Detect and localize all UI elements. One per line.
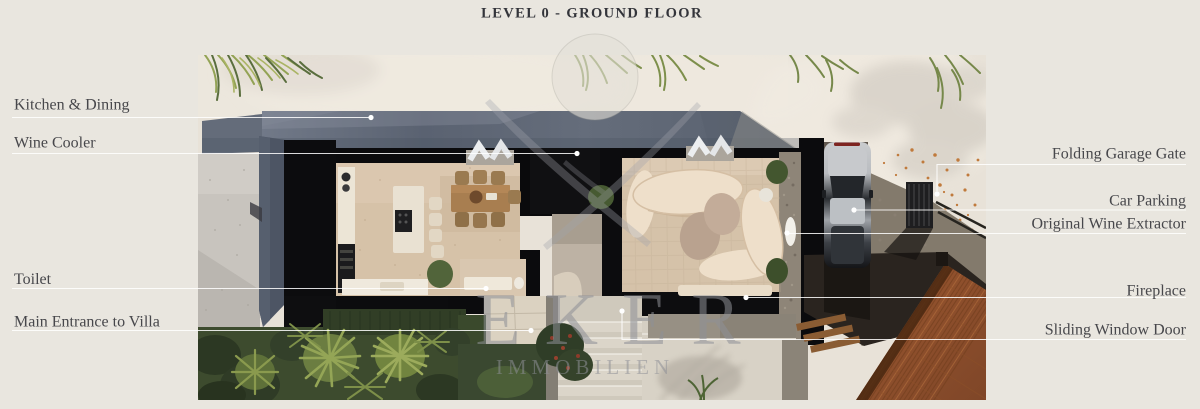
svg-text:Main Entrance to Villa: Main Entrance to Villa [14, 314, 160, 331]
svg-text:Original Wine Extractor: Original Wine Extractor [1031, 216, 1186, 233]
svg-text:Toilet: Toilet [14, 271, 52, 288]
svg-text:Folding Garage Gate: Folding Garage Gate [1052, 146, 1186, 163]
svg-text:EKER: EKER [475, 279, 764, 361]
svg-text:Fireplace: Fireplace [1126, 283, 1186, 300]
svg-text:Sliding Window Door: Sliding Window Door [1045, 322, 1187, 339]
svg-text:LEVEL 0 - GROUND FLOOR: LEVEL 0 - GROUND FLOOR [481, 6, 703, 22]
svg-text:Kitchen & Dining: Kitchen & Dining [14, 97, 130, 114]
svg-text:Wine Cooler: Wine Cooler [14, 135, 96, 152]
svg-text:Car Parking: Car Parking [1109, 193, 1186, 210]
svg-text:IMMOBILIEN: IMMOBILIEN [496, 355, 674, 379]
